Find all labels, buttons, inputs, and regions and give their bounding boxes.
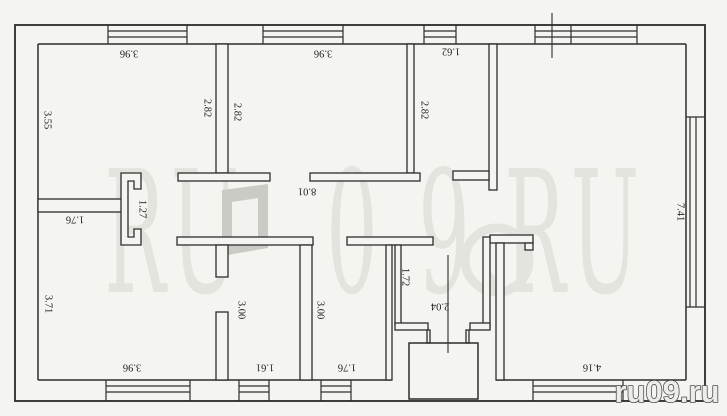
dimension-label-room6-width-bottom: 1.76 bbox=[338, 362, 356, 373]
watermark-small: ru09.ru bbox=[614, 374, 719, 409]
door-post-left bbox=[427, 330, 430, 343]
dimension-label-room5-height: 3.00 bbox=[236, 301, 247, 319]
watermark-large: RU09.RU bbox=[104, 135, 639, 333]
dimension-label-vestibule-height: 1.72 bbox=[400, 268, 411, 286]
watermark-letter: U bbox=[571, 135, 640, 333]
dimension-label-room6-height: 3.00 bbox=[315, 301, 326, 319]
dimension-label-room5-width-bottom: 1.61 bbox=[256, 362, 274, 373]
dimension-label-hall-length: 8.01 bbox=[298, 186, 316, 197]
dimension-label-hall-doorway-width: 1.27 bbox=[137, 200, 148, 218]
dimension-label-room4-width-top: 1.76 bbox=[66, 214, 84, 225]
dimension-label-room1-width-top: 3.96 bbox=[120, 48, 138, 59]
dimension-label-room2-width-top: 3.96 bbox=[314, 48, 332, 59]
dimension-label-room3-height-left: 2.82 bbox=[419, 101, 430, 119]
watermark-letter: 0 bbox=[326, 135, 378, 333]
dimension-label-room3-width-top: 1.62 bbox=[442, 46, 460, 57]
door-post-right bbox=[466, 330, 469, 343]
dimension-label-room1-height-right: 2.82 bbox=[202, 99, 213, 117]
dimension-label-room4-width-bottom: 3.96 bbox=[123, 362, 141, 373]
floor-plan-canvas: RU09.RU bbox=[0, 0, 727, 416]
dimension-label-room2-height-left: 2.82 bbox=[232, 103, 243, 121]
floor-plan-page: RU09.RU bbox=[0, 0, 727, 416]
dimension-label-room1-height-left: 3.55 bbox=[42, 111, 53, 129]
dimension-label-vestibule-width: 2.04 bbox=[430, 301, 449, 312]
dimension-label-room7-height-right: 7.41 bbox=[675, 203, 686, 221]
dimension-label-room7-width-bottom: 4.16 bbox=[583, 362, 601, 373]
dimension-label-room4-height-left: 3.71 bbox=[43, 295, 54, 313]
